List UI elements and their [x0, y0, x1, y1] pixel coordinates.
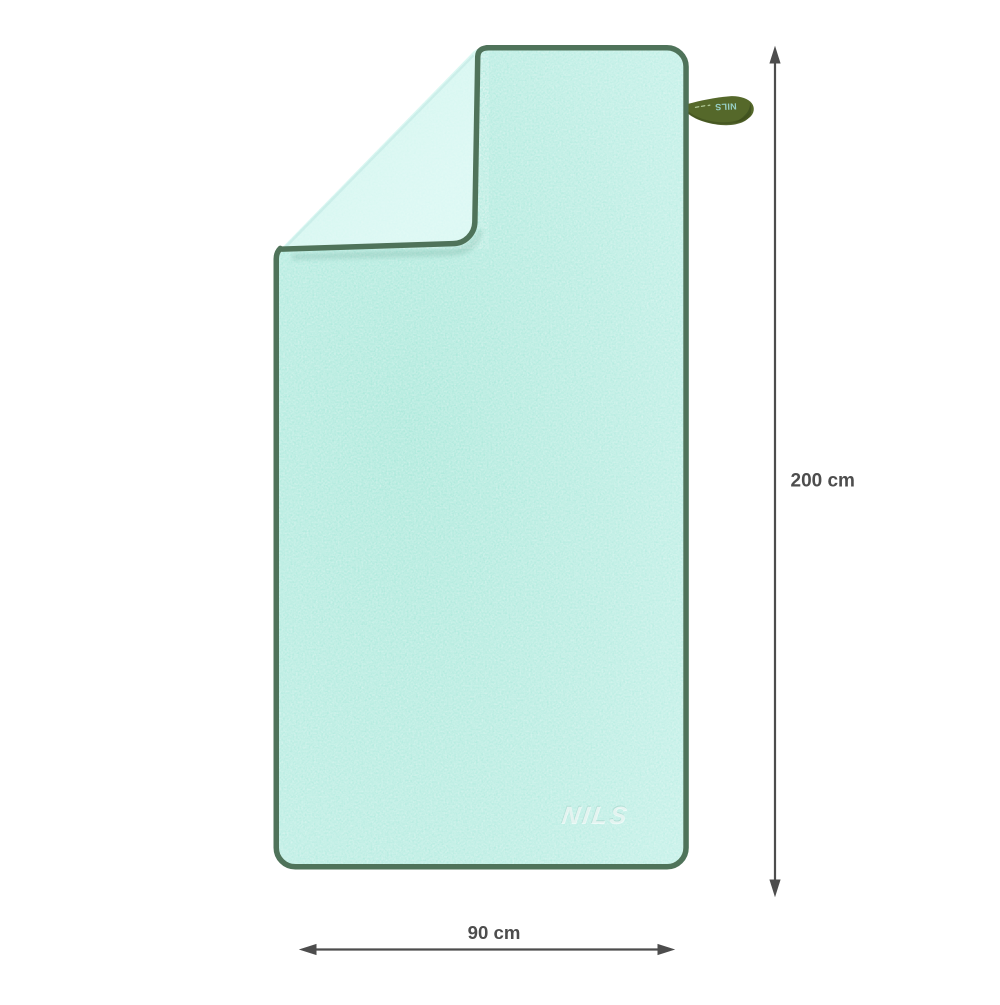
svg-text:NILS: NILS	[715, 101, 737, 112]
svg-text:NILS: NILS	[560, 802, 631, 830]
svg-text:200 cm: 200 cm	[791, 471, 855, 492]
svg-text:90 cm: 90 cm	[468, 922, 521, 943]
